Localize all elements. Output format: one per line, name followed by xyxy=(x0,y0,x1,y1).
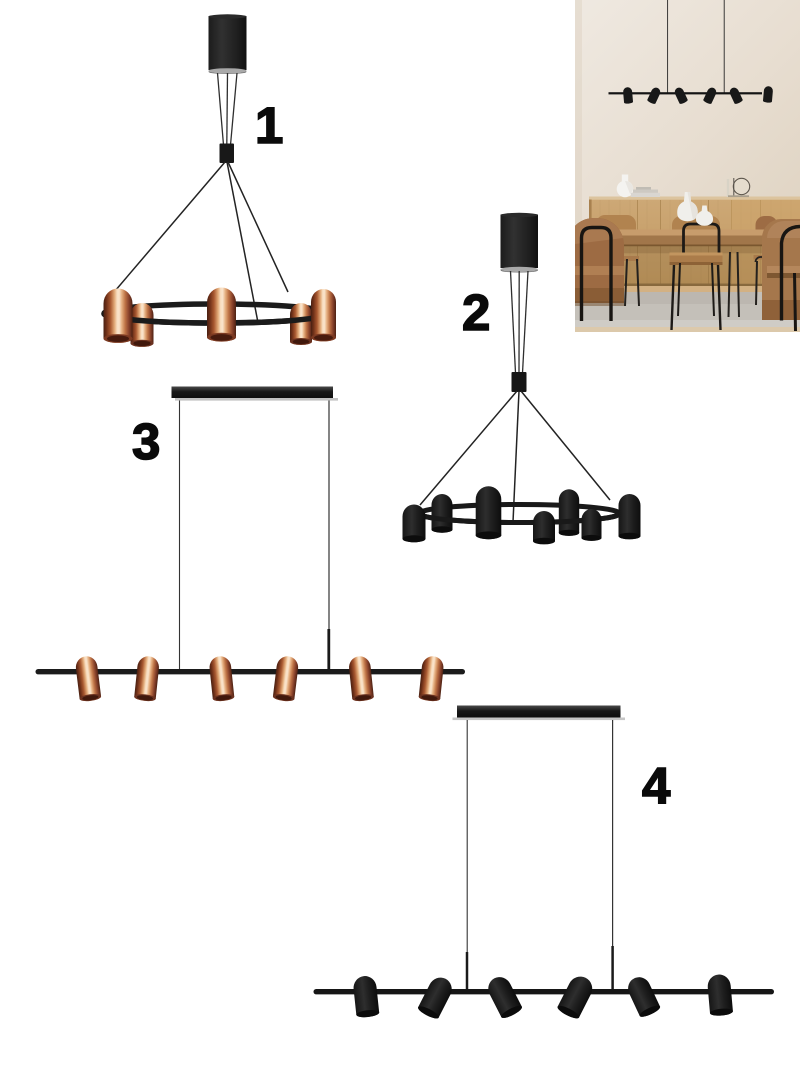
svg-text:4: 4 xyxy=(642,757,671,814)
svg-text:3: 3 xyxy=(132,413,160,470)
svg-text:2: 2 xyxy=(462,284,490,341)
svg-text:1: 1 xyxy=(255,97,283,154)
